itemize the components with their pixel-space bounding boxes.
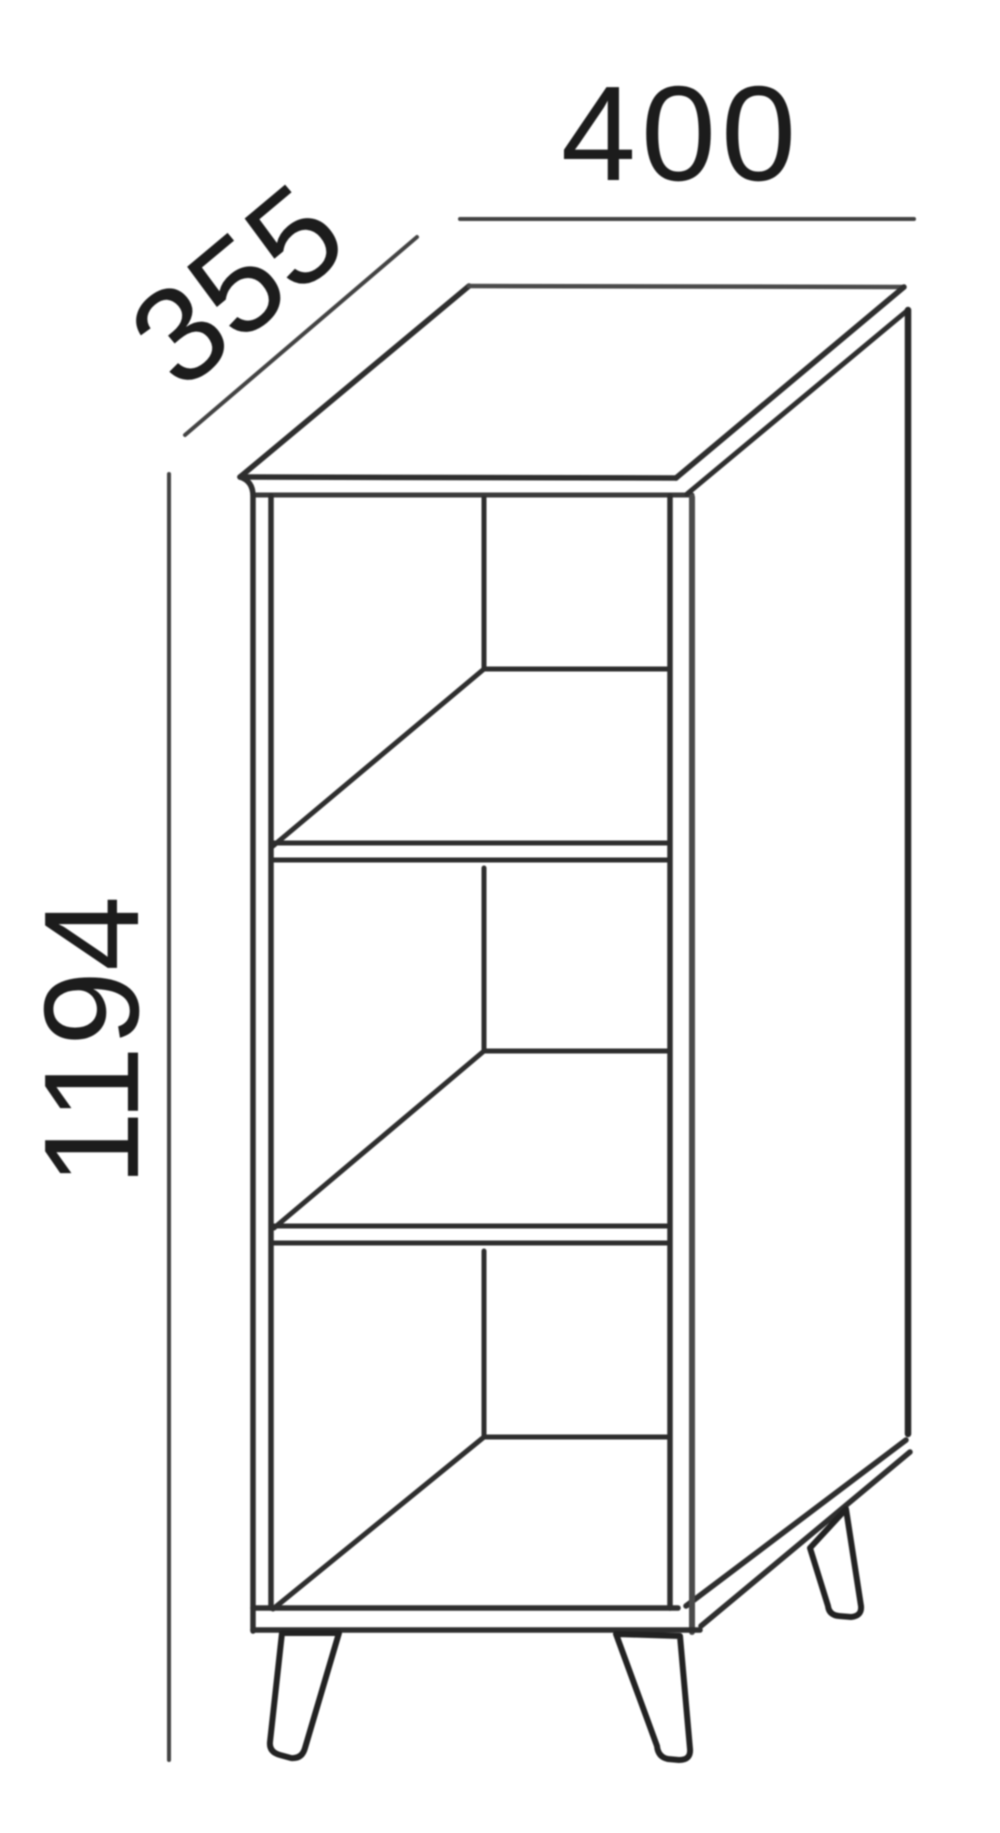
svg-text:400: 400 bbox=[561, 58, 801, 209]
svg-text:1194: 1194 bbox=[16, 896, 167, 1186]
